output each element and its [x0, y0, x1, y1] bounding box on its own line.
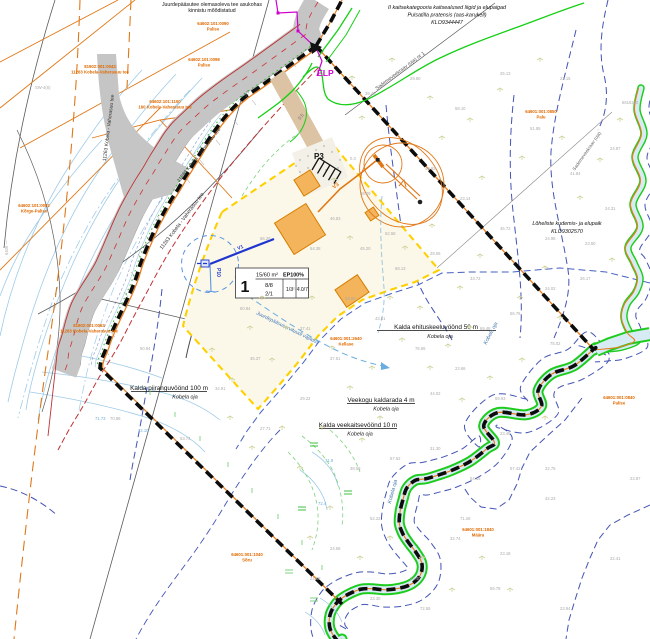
- svg-text:23.18: 23.18: [500, 551, 511, 556]
- svg-text:11263 Kobela-Vaherasuu tee: 11263 Kobela-Vaherasuu tee: [71, 70, 129, 75]
- svg-text:2/1: 2/1: [265, 292, 273, 298]
- svg-text:8/8: 8/8: [265, 283, 273, 289]
- svg-text:27.71: 27.71: [260, 426, 271, 431]
- svg-text:23.49: 23.49: [500, 431, 511, 436]
- svg-text:Lõheliste kudemis- ja elupaik: Lõheliste kudemis- ja elupaik: [532, 221, 602, 227]
- svg-text:Kalda ehituskeeluvöönd 50 m: Kalda ehituskeeluvöönd 50 m: [394, 324, 478, 331]
- svg-text:KLO9344447: KLO9344447: [431, 20, 464, 26]
- svg-text:71.26: 71.26: [460, 516, 471, 521]
- svg-text:72.10: 72.10: [138, 428, 149, 433]
- svg-text:kinnistu mõõdistatud: kinnistu mõõdistatud: [188, 8, 235, 14]
- svg-text:53.89: 53.89: [345, 296, 356, 301]
- svg-text:Kobela oja: Kobela oja: [347, 432, 372, 438]
- svg-text:EP100%: EP100%: [283, 273, 304, 279]
- svg-text:24.02: 24.02: [545, 286, 556, 291]
- svg-text:69.93: 69.93: [495, 396, 506, 401]
- svg-text:24.31: 24.31: [605, 206, 616, 211]
- svg-text:Kellase: Kellase: [338, 342, 354, 347]
- svg-text:Veekogu kaldarada 4 m: Veekogu kaldarada 4 m: [347, 397, 414, 404]
- svg-text:60.84: 60.84: [240, 306, 251, 311]
- svg-text:23.30: 23.30: [370, 596, 381, 601]
- svg-text:53.74: 53.74: [180, 436, 191, 441]
- svg-text:38.58: 38.58: [350, 466, 361, 471]
- svg-text:50.94: 50.94: [140, 346, 151, 351]
- svg-text:54.38: 54.38: [310, 246, 321, 251]
- svg-text:37.51: 37.51: [330, 356, 341, 361]
- svg-text:64601:001:0840: 64601:001:0840: [603, 395, 635, 400]
- svg-text:Kalda veekaitsevöönd 10 m: Kalda veekaitsevöönd 10 m: [319, 422, 398, 429]
- svg-text:72.4: 72.4: [318, 501, 327, 506]
- svg-text:SW-4(6): SW-4(6): [35, 85, 51, 90]
- svg-text:52.22: 52.22: [370, 516, 381, 521]
- svg-text:Kobela oja: Kobela oja: [172, 395, 197, 401]
- svg-text:6618250: 6618250: [622, 100, 639, 105]
- svg-text:66.28: 66.28: [260, 236, 271, 241]
- svg-text:64601:001:1840: 64601:001:1840: [462, 527, 494, 532]
- svg-text:45.20: 45.20: [360, 246, 371, 251]
- svg-text:22.41: 22.41: [610, 556, 621, 561]
- svg-text:42.23: 42.23: [545, 496, 556, 501]
- svg-text:29.22: 29.22: [300, 396, 311, 401]
- svg-text:Kõrge-Palise: Kõrge-Palise: [21, 209, 48, 214]
- svg-text:39.46: 39.46: [365, 91, 376, 96]
- svg-text:46.83: 46.83: [330, 216, 341, 221]
- svg-text:P10: P10: [215, 268, 221, 277]
- svg-text:23.87: 23.87: [630, 476, 641, 481]
- svg-text:Pulsatilla pratensis (aas-karu: Pulsatilla pratensis (aas-karukell): [407, 13, 486, 19]
- svg-text:Palu: Palu: [536, 115, 545, 120]
- svg-text:56.76: 56.76: [510, 311, 521, 316]
- svg-text:81902:001:0063: 81902:001:0063: [73, 323, 105, 328]
- svg-text:23.60: 23.60: [585, 241, 596, 246]
- svg-text:71.9: 71.9: [325, 458, 334, 463]
- svg-text:34.91: 34.91: [215, 386, 226, 391]
- svg-text:15/60 m²: 15/60 m²: [256, 273, 278, 279]
- svg-text:45.72: 45.72: [500, 226, 511, 231]
- svg-text:24.58: 24.58: [310, 576, 321, 581]
- svg-text:22.75: 22.75: [545, 466, 556, 471]
- svg-text:57.42: 57.42: [510, 466, 521, 471]
- svg-text:Kobela oja: Kobela oja: [373, 407, 398, 413]
- svg-text:24.98: 24.98: [545, 236, 556, 241]
- svg-text:23.14: 23.14: [460, 196, 471, 201]
- svg-text:Kalda piiranguvöönd 100 m: Kalda piiranguvöönd 100 m: [130, 385, 208, 392]
- svg-text:81902:001:0043: 81902:001:0043: [84, 64, 116, 69]
- svg-text:26.17: 26.17: [580, 276, 591, 281]
- svg-text:Palise: Palise: [207, 27, 220, 32]
- svg-text:51.55: 51.55: [530, 126, 541, 131]
- svg-text:58.10: 58.10: [455, 106, 466, 111]
- svg-text:76.65: 76.65: [415, 346, 426, 351]
- svg-text:41.84: 41.84: [570, 171, 581, 176]
- svg-text:25.13: 25.13: [500, 71, 511, 76]
- svg-text:23.15: 23.15: [560, 76, 571, 81]
- svg-text:43.61: 43.61: [375, 316, 386, 321]
- svg-text:64602:101:0098: 64602:101:0098: [188, 57, 220, 62]
- svg-text:33.72: 33.72: [470, 276, 481, 281]
- svg-text:Määra: Määra: [472, 533, 485, 538]
- svg-text:23.66: 23.66: [455, 366, 466, 371]
- svg-text:29.60: 29.60: [410, 76, 421, 81]
- svg-text:59.78: 59.78: [490, 586, 501, 591]
- svg-text:160 Kobela-Vaherasuu tee: 160 Kobela-Vaherasuu tee: [138, 105, 192, 110]
- svg-text:0.3: 0.3: [350, 156, 356, 161]
- svg-text:31.30: 31.30: [430, 446, 441, 451]
- svg-text:64602:101:0090: 64602:101:0090: [197, 21, 229, 26]
- svg-text:70.88: 70.88: [110, 416, 121, 421]
- svg-text:44.02: 44.02: [430, 391, 441, 396]
- svg-text:75.02: 75.02: [550, 341, 561, 346]
- svg-text:ELP: ELP: [317, 68, 334, 78]
- svg-text:62.58: 62.58: [385, 231, 396, 236]
- svg-text:64602:101:1100: 64602:101:1100: [149, 99, 181, 104]
- svg-text:45.37: 45.37: [250, 356, 261, 361]
- svg-text:37.41: 37.41: [300, 326, 311, 331]
- svg-text:Palise: Palise: [198, 63, 211, 68]
- svg-text:38.09: 38.09: [360, 191, 371, 196]
- svg-text:64601:001:1040: 64601:001:1040: [231, 552, 263, 557]
- svg-text:32.74: 32.74: [450, 536, 461, 541]
- svg-text:67.52: 67.52: [390, 456, 401, 461]
- svg-text:49.92: 49.92: [425, 166, 436, 171]
- svg-text:72.55: 72.55: [420, 606, 431, 611]
- svg-text:Palise: Palise: [613, 401, 626, 406]
- svg-text:24.87: 24.87: [610, 146, 621, 151]
- svg-text:54.15: 54.15: [470, 476, 481, 481]
- svg-text:6406 —: 6406 —: [4, 240, 9, 255]
- svg-text:Sõru: Sõru: [242, 558, 252, 563]
- svg-text:P3: P3: [314, 152, 324, 161]
- svg-text:68.13: 68.13: [395, 266, 406, 271]
- svg-text:64601:001:2640: 64601:001:2640: [330, 336, 362, 341]
- svg-text:23.94: 23.94: [560, 606, 571, 611]
- svg-text:II kaitsekategooria kaitsealus: II kaitsekategooria kaitsealused liigid …: [388, 5, 507, 11]
- svg-text:28.06: 28.06: [430, 251, 441, 256]
- svg-text:64602:101:0092: 64602:101:0092: [18, 203, 50, 208]
- svg-text:38.91: 38.91: [290, 286, 301, 291]
- svg-text:KLO9302570: KLO9302570: [551, 229, 583, 235]
- svg-text:71.73: 71.73: [95, 416, 106, 421]
- svg-text:1: 1: [241, 279, 250, 296]
- svg-text:Kobela oja: Kobela oja: [427, 334, 452, 340]
- svg-text:24.40: 24.40: [410, 576, 421, 581]
- svg-text:69.48: 69.48: [480, 326, 491, 331]
- svg-text:24.58: 24.58: [330, 546, 341, 551]
- svg-text:64601:001:0850: 64601:001:0850: [525, 109, 557, 114]
- svg-text:11263 Kobela-Vaherasuu tee: 11263 Kobela-Vaherasuu tee: [60, 329, 118, 334]
